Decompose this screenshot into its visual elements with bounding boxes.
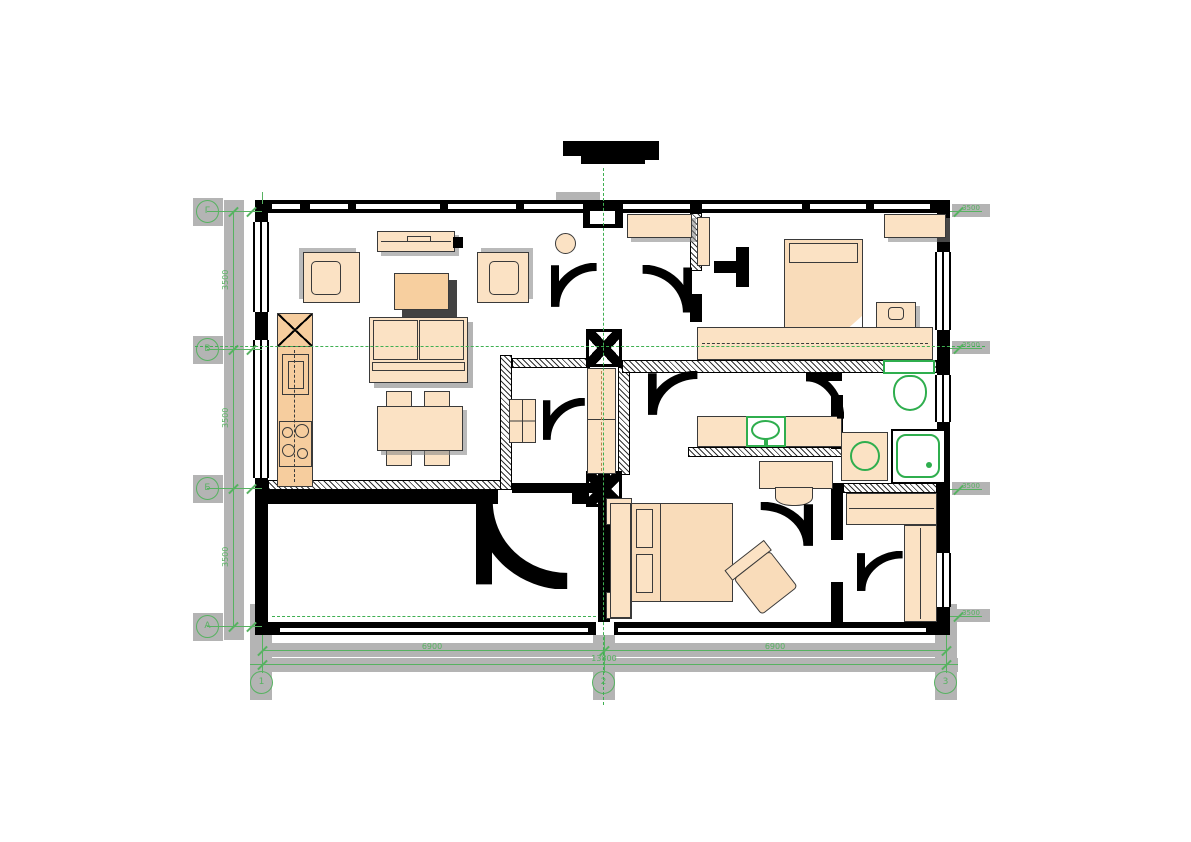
door-opening — [831, 540, 843, 582]
fridge — [277, 313, 313, 347]
section-line-horizontal — [195, 346, 985, 347]
wardrobe — [884, 214, 946, 238]
door-swing — [476, 497, 572, 589]
plant — [555, 233, 576, 254]
door-swing — [758, 502, 813, 548]
burner — [295, 424, 309, 438]
grid-bubble-label: А — [204, 622, 210, 631]
grid-bubble-row: В — [196, 338, 219, 361]
dimension-label: 3500 — [222, 535, 230, 579]
toilet-bowl — [893, 375, 927, 411]
title-blob — [633, 144, 659, 160]
hall-cabinet — [509, 399, 536, 443]
grid-bubble-row: Б — [196, 477, 219, 500]
grid-bubble-label: Б — [204, 484, 210, 493]
door-swing — [640, 265, 692, 315]
sofa-cushion — [419, 320, 464, 360]
wall-interior — [688, 447, 843, 457]
door-swing — [857, 551, 905, 593]
tall-cabinet-centerline — [601, 371, 602, 471]
grid-bubble-col: 1 — [250, 671, 273, 694]
bed2-blanket-line — [660, 504, 661, 601]
ventilation-shaft — [586, 329, 622, 367]
grid-bubble-label: 1 — [259, 678, 265, 687]
dimension-label: 3500 — [956, 610, 986, 617]
wall-post — [300, 200, 310, 213]
window — [253, 340, 269, 478]
grid-bubble-label: Г — [205, 207, 211, 216]
door-swing — [543, 398, 587, 442]
dimension-label: 3500 — [222, 258, 230, 302]
door-swing — [804, 373, 844, 421]
window — [935, 252, 951, 330]
shower-tray-inner — [896, 434, 940, 478]
door-swing — [648, 371, 700, 417]
wall-interior — [618, 367, 630, 475]
wall-interior — [843, 483, 937, 493]
dimension-label: 6900 — [410, 643, 454, 651]
dimension-label: 3500 — [956, 483, 986, 490]
grid-line-extension — [262, 192, 263, 204]
door-swing — [551, 263, 599, 309]
highlight-strip — [556, 192, 600, 200]
bed2-pillow — [636, 554, 653, 593]
dining-chair — [424, 449, 450, 466]
bathroom-sink-tap — [764, 438, 768, 446]
grid-bubble-col: 3 — [934, 671, 957, 694]
sofa-cushion — [373, 320, 418, 360]
wall-post — [440, 200, 448, 213]
wall-post — [690, 200, 702, 213]
desk — [759, 461, 833, 489]
floor-plan-canvas: 3500 3500 3500 Г В Б А 6900 6900 13800 1… — [0, 0, 1191, 842]
bed2-pillow — [636, 509, 653, 548]
burner — [297, 448, 308, 459]
dining-table — [377, 406, 463, 451]
wall-post — [516, 200, 524, 213]
toilet-tank — [883, 360, 935, 374]
closet-cabinet-line — [920, 528, 921, 619]
section-line-vertical — [603, 168, 604, 705]
dining-chair — [386, 449, 412, 466]
grid-line-extension — [262, 635, 263, 673]
closet-cabinet — [846, 493, 937, 525]
window — [253, 222, 269, 312]
window — [935, 375, 951, 422]
washing-machine-drum — [850, 441, 880, 471]
kitchen-sink-basin — [288, 361, 304, 389]
window-ribbon-bottom — [280, 628, 588, 632]
burner — [282, 427, 293, 438]
sofa-seat-edge — [372, 362, 465, 371]
grid-line-extension — [946, 635, 947, 673]
wall-interior — [512, 483, 608, 493]
wall-post — [802, 200, 810, 213]
wardrobe — [627, 214, 692, 238]
counter-centerline — [294, 350, 295, 482]
dimension-label: 6900 — [753, 643, 797, 651]
bed2-headboard — [610, 503, 631, 618]
entry-door-opening — [596, 622, 614, 635]
closet-cabinet-line — [849, 508, 934, 509]
door-leaf — [714, 261, 738, 273]
armchair-seat — [489, 261, 519, 295]
window — [935, 553, 951, 607]
tv-console-handle — [407, 236, 431, 242]
grid-bubble-row: Г — [196, 200, 219, 223]
bed-pillow — [789, 243, 858, 263]
window-ribbon-bottom — [618, 628, 926, 632]
bathroom-sink-bowl — [751, 420, 780, 440]
shower-drain — [926, 462, 932, 468]
dimension-label: 13800 — [582, 655, 626, 663]
threshold-dashed-line — [272, 616, 596, 617]
wall-interior — [512, 358, 590, 368]
armchair-seat — [311, 261, 341, 295]
nightstand-lamp — [888, 307, 904, 320]
wardrobe-run-centerline — [702, 343, 928, 344]
dimension-label: 3500 — [222, 396, 230, 440]
wardrobe-narrow — [697, 217, 710, 266]
grid-bubble-label: 3 — [943, 678, 949, 687]
wall-post — [866, 200, 874, 213]
coffee-table — [394, 273, 449, 310]
grid-bubble-row: А — [196, 615, 219, 638]
dimension-label: 3500 — [956, 205, 986, 212]
wall-post — [348, 200, 356, 213]
tv-console-end — [453, 237, 463, 248]
dimension-line-left — [233, 211, 234, 626]
